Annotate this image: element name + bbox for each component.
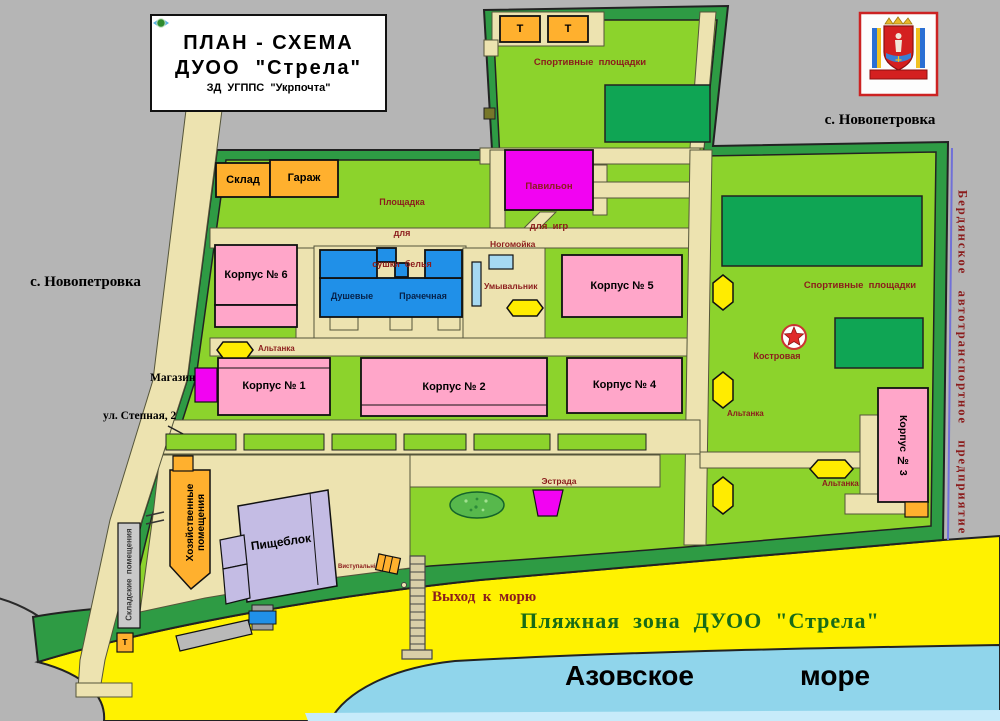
gazebo-right-1 [713, 275, 733, 310]
path-vertical-1 [296, 248, 314, 338]
shower-stub-2 [390, 316, 412, 330]
gazebo-label-right: Альтанка [727, 409, 764, 418]
sport-field-top [605, 85, 710, 142]
stage-building [533, 490, 563, 516]
sea-label-2: море [800, 660, 870, 692]
household-label: Хозяйственные помещения [173, 450, 208, 600]
gazebo-label-k6: Альтанка [258, 344, 295, 353]
drying-area-label: Площадка для сушки белья [358, 176, 446, 279]
korpus-2-label: Корпус № 2 [361, 358, 547, 416]
village-label-left: с. Новопетровка [8, 274, 163, 291]
street-label: ул. Степная, 2 [103, 410, 176, 423]
footwash-building [489, 255, 513, 269]
emblem-ribbon-left-gold [877, 28, 881, 68]
site-plan-map: ПЛАН - СХЕМА ДУОО "Стрела" ЗД УГППС "Укр… [0, 0, 1000, 721]
sign-org-row: ЗД УГППС "Укрпочта" [207, 82, 331, 94]
canteen-annex-2 [223, 564, 250, 604]
sign-title-line-2: ДУОО "Стрела" [175, 57, 362, 80]
emblem-ribbon-left-blue [872, 28, 877, 68]
utility-box [484, 108, 495, 119]
korpus-6-annex [215, 305, 297, 327]
village-label-top-right: с. Новопетровка [795, 112, 965, 129]
kiosk-note-label: Виступальні [338, 564, 376, 571]
shower-stub-3 [438, 316, 460, 330]
gazebo-k6 [217, 342, 253, 358]
korpus-3-label: Корпус № 3 [878, 388, 928, 502]
sport-area-label-top: Спортивные площадки [505, 58, 675, 69]
entrance-sign: ПЛАН - СХЕМА ДУОО "Стрела" ЗД УГППС "Укр… [150, 14, 387, 112]
sport-field-right-2 [835, 318, 923, 368]
stage-label: Эстрада [536, 477, 582, 487]
sport-area-label-right: Спортивные площадки [785, 281, 935, 292]
ukrposhta-logo-icon [152, 16, 170, 31]
coat-of-arms [860, 13, 937, 95]
korpus-5-label: Корпус № 5 [562, 255, 682, 317]
footwash-label: Ногомойка [490, 240, 535, 250]
korpus-1-label: Корпус № 1 [218, 358, 330, 415]
campfire-spot [782, 325, 806, 349]
shower-label: Душевые [322, 291, 382, 301]
beach-zone-label: Пляжная зона ДУОО "Стрела" [470, 608, 930, 633]
exit-to-sea-label: Выход к морю [432, 589, 536, 606]
emblem-ribbon-right-gold [916, 28, 920, 68]
emblem-banner [870, 70, 927, 79]
toilet-label-1: Т [500, 16, 540, 42]
gazebo-right-2 [713, 372, 733, 408]
shop-label: Магазин [150, 372, 195, 385]
washstand-building [472, 262, 481, 306]
shower-stub-1 [330, 316, 358, 330]
sea-label-1: Азовское [565, 660, 694, 692]
sport-field-right-1 [722, 196, 922, 266]
toilet-step [484, 40, 498, 56]
garage-label: Гараж [270, 160, 338, 197]
sign-title-line-1: ПЛАН - СХЕМА [183, 32, 354, 55]
korpus-4-label: Корпус № 4 [567, 358, 682, 413]
water-tank [249, 605, 276, 630]
washstand-label: Умывальник [484, 282, 538, 292]
emblem-crown [885, 17, 912, 24]
road-tip [76, 683, 132, 697]
gazebo-label-k3: Альтанка [822, 479, 859, 488]
gazebo-washstand [507, 300, 543, 316]
emblem-figure-head [896, 33, 902, 39]
laundry-label: Прачечная [390, 291, 456, 301]
storage-label: Складские помещения [124, 515, 133, 635]
korpus-3-annex [905, 502, 928, 517]
toilet-label-bottom: Т [117, 633, 133, 652]
sklad-label: Склад [216, 163, 270, 197]
path-mid-wide [410, 455, 660, 487]
korpus-6-label: Корпус № 6 [215, 245, 297, 305]
gazebo-right-3 [713, 477, 733, 514]
toilet-label-2: Т [548, 16, 588, 42]
gazebo-k3 [810, 460, 853, 478]
flowerbed [450, 492, 504, 518]
emblem-figure-body [895, 40, 902, 52]
path-pavilion-east [593, 182, 693, 198]
transport-company-label: Бердянское автотранспортное предприятие [955, 190, 969, 550]
emblem-ribbon-right-blue [920, 28, 925, 68]
sign-org-label: ЗД УГППС "Укрпочта" [207, 82, 331, 94]
shop-building [195, 368, 217, 402]
campfire-label: Костровая [746, 351, 808, 361]
pavilion-label: Павильон для игр [505, 160, 593, 243]
